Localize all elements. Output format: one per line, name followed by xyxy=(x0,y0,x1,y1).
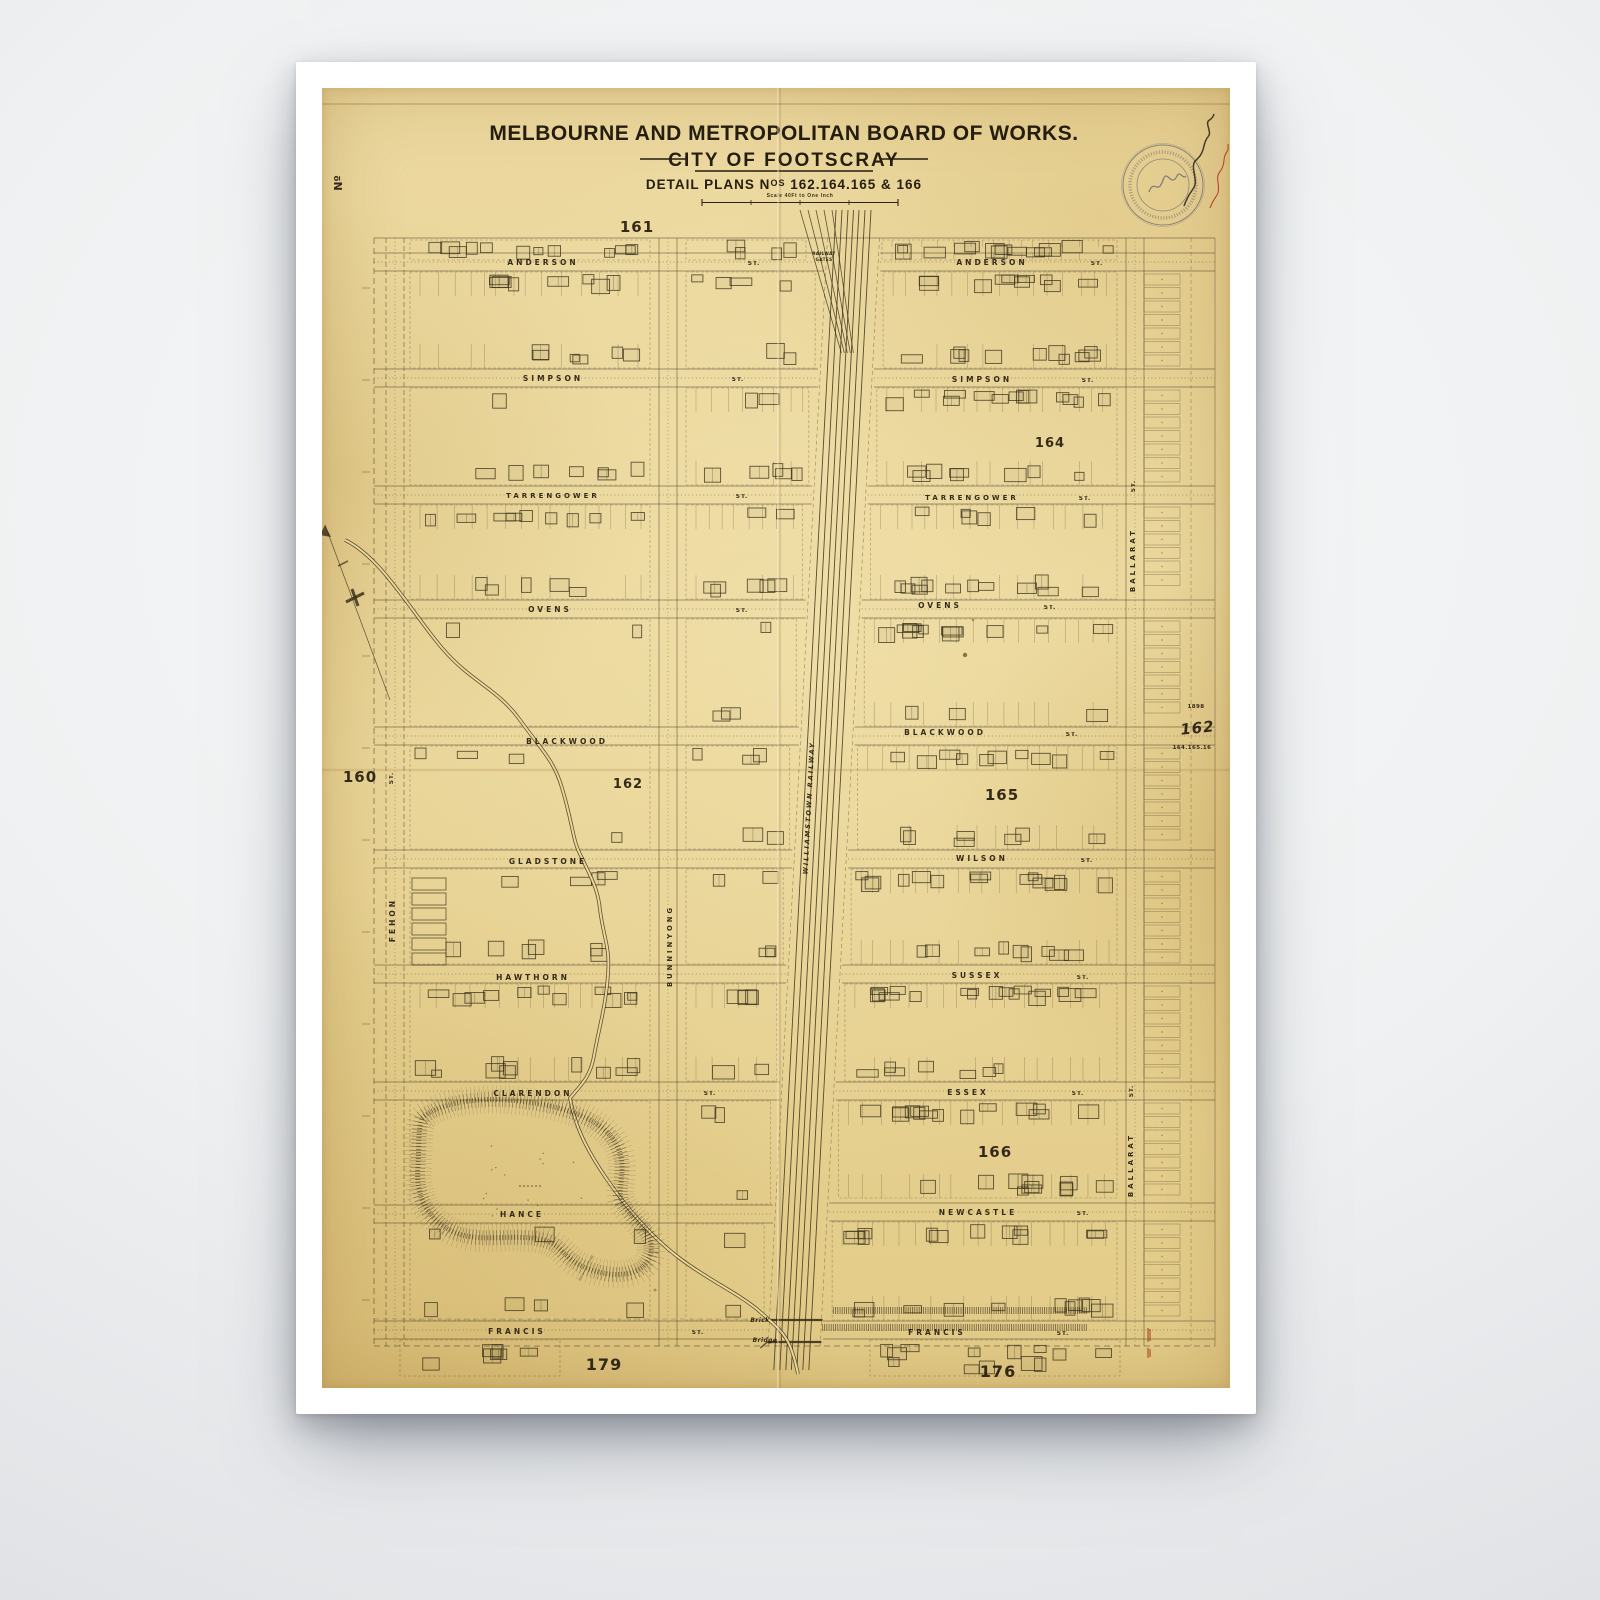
swamp-center-mark xyxy=(531,1185,533,1187)
francis-label: FRANCIS xyxy=(488,1327,546,1336)
building-footprint xyxy=(1013,945,1028,957)
building-footprint xyxy=(995,275,1015,284)
swamp-center-mark xyxy=(523,1185,525,1187)
swamp-layer xyxy=(418,1099,652,1274)
lot-dot xyxy=(1161,916,1162,917)
building-footprint xyxy=(933,1110,944,1122)
building-footprint xyxy=(766,946,776,957)
building-footprint xyxy=(509,278,519,291)
city-blocks-layer xyxy=(400,240,1180,1376)
lot-dot xyxy=(1161,333,1162,334)
block-boundary xyxy=(410,1224,650,1320)
anderson-label: ANDERSON xyxy=(956,258,1027,267)
hawthorn-label: HAWTHORN xyxy=(496,973,570,982)
building-footprint xyxy=(921,1180,936,1193)
building-footprint xyxy=(1103,246,1113,253)
swamp-dot xyxy=(486,1193,487,1194)
lot-dot xyxy=(1161,1108,1162,1109)
lot-dot xyxy=(1161,766,1162,767)
building-footprint xyxy=(711,584,721,597)
building-footprint xyxy=(453,994,471,1006)
building-footprint xyxy=(502,876,518,887)
building-footprint xyxy=(747,579,763,592)
st--label: ST. xyxy=(736,608,748,614)
gladstone-label: GLADSTONE xyxy=(509,857,587,866)
building-footprint xyxy=(482,1345,501,1357)
approval-stamp-outer-ring xyxy=(1122,144,1205,227)
lot-dot xyxy=(1161,889,1162,890)
building-footprint xyxy=(546,513,557,524)
swamp-dot xyxy=(542,1163,543,1164)
lot-dot xyxy=(1161,306,1162,307)
building-footprint xyxy=(961,509,970,517)
building-footprint xyxy=(500,1066,516,1079)
building-footprint xyxy=(768,579,787,592)
building-footprint xyxy=(978,513,990,526)
lot-dot xyxy=(1161,1004,1162,1005)
lot-dot xyxy=(1161,360,1162,361)
swamp-dot xyxy=(573,1162,574,1163)
lot-dot xyxy=(1161,476,1162,477)
building-footprint xyxy=(509,465,523,480)
board-title: MELBOURNE AND METROPOLITAN BOARD OF WORK… xyxy=(489,122,1078,145)
st--label: ST. xyxy=(1057,1331,1069,1337)
building-footprint xyxy=(476,468,495,478)
building-footprint xyxy=(861,1105,881,1117)
164-label: 164 xyxy=(1035,436,1065,451)
sussex-label: SUSSEX xyxy=(952,971,1003,980)
swamp-dot xyxy=(483,1198,484,1199)
lot-dot xyxy=(1161,1162,1162,1163)
building-footprint xyxy=(1084,514,1096,527)
building-footprint xyxy=(1064,950,1083,961)
building-footprint xyxy=(627,1303,644,1318)
paper-stain-spot xyxy=(963,653,967,657)
building-footprint xyxy=(446,623,459,638)
swamp-center-mark xyxy=(527,1185,529,1187)
swamp-dot xyxy=(581,1197,582,1198)
anderson-label: ANDERSON xyxy=(507,258,578,267)
ballarat-label: BALLARAT xyxy=(1127,1133,1135,1197)
building-footprint xyxy=(484,991,499,1001)
st--label: ST. xyxy=(748,261,760,267)
building-footprint xyxy=(965,242,980,252)
building-footprint xyxy=(429,242,442,252)
building-footprint xyxy=(748,508,766,517)
tarrengower-label: TARRENGOWER xyxy=(925,494,1019,502)
building-footprint xyxy=(550,579,569,592)
red-margin-mark xyxy=(1148,1348,1150,1358)
building-footprint xyxy=(1020,874,1042,884)
building-footprint xyxy=(715,1108,724,1123)
brick-label: Brick xyxy=(750,1317,770,1324)
lot-dot xyxy=(1161,639,1162,640)
building-footprint xyxy=(423,1358,439,1370)
framed-map-poster: MELBOURNE AND METROPOLITAN BOARD OF WORK… xyxy=(296,62,1256,1414)
ovens-label: OVENS xyxy=(528,605,572,614)
lot-dot xyxy=(1161,1283,1162,1284)
lot-dot xyxy=(1161,279,1162,280)
building-footprint xyxy=(634,1230,645,1244)
building-footprint xyxy=(968,580,979,592)
building-footprint xyxy=(1028,466,1040,478)
lot-dot xyxy=(1161,435,1162,436)
building-footprint xyxy=(745,393,757,408)
building-footprint xyxy=(886,398,903,411)
lot-dot xyxy=(1161,539,1162,540)
railway-reserve-boundary xyxy=(820,238,879,1346)
paper-stain-spot xyxy=(654,1289,657,1292)
lot-dot xyxy=(1161,1296,1162,1297)
wall-background: MELBOURNE AND METROPOLITAN BOARD OF WORK… xyxy=(0,0,1600,1600)
simpson-label: SIMPSON xyxy=(523,374,583,383)
st--label: ST. xyxy=(1079,496,1091,502)
building-footprint xyxy=(633,625,642,638)
building-footprint xyxy=(949,708,965,719)
building-footprint xyxy=(1099,394,1111,406)
building-footprint xyxy=(1098,878,1112,893)
building-footprint xyxy=(917,946,927,957)
lot-dot xyxy=(1161,780,1162,781)
st--label: ST. xyxy=(704,1091,716,1097)
building-footprint xyxy=(592,279,610,293)
fehon-frontage-lot xyxy=(412,953,446,965)
street-hatch-band xyxy=(832,1307,1087,1314)
building-footprint xyxy=(763,872,778,884)
paper-stain-spot xyxy=(972,619,974,621)
building-footprint xyxy=(919,1061,934,1072)
164-165-16-label: 164.165.16 xyxy=(1173,745,1212,751)
building-footprint xyxy=(1079,350,1101,361)
lot-dot xyxy=(1161,626,1162,627)
building-footprint xyxy=(846,1231,864,1238)
lot-dot xyxy=(1161,395,1162,396)
1898-label: 1898 xyxy=(1188,704,1205,710)
st--label: ST. xyxy=(1044,605,1056,611)
building-footprint xyxy=(910,992,921,1002)
building-footprint xyxy=(570,467,584,477)
swamp-stipple xyxy=(418,1099,652,1274)
st--label: ST. xyxy=(1082,378,1094,384)
building-footprint xyxy=(1096,1181,1113,1193)
fehon-label: FEHON xyxy=(388,898,397,942)
building-footprint xyxy=(1078,1105,1098,1119)
city-title: CITY OF FOOTSCRAY xyxy=(668,150,899,171)
railway-siding xyxy=(808,210,844,353)
swamp-edge xyxy=(418,1099,652,1274)
lot-dot xyxy=(1161,525,1162,526)
building-footprint xyxy=(980,754,994,765)
building-footprint xyxy=(522,578,531,593)
building-footprint xyxy=(493,394,507,408)
lot-dot xyxy=(1161,957,1162,958)
building-footprint xyxy=(891,752,905,762)
building-footprint xyxy=(1016,750,1028,758)
building-footprint xyxy=(978,583,993,591)
lot-dot xyxy=(1161,346,1162,347)
building-footprint xyxy=(913,626,924,638)
building-footprint xyxy=(1058,987,1069,996)
stamp-signature-squiggle xyxy=(1149,174,1186,192)
swamp-dot xyxy=(492,1215,493,1216)
building-footprint xyxy=(726,1305,741,1317)
lot-dot xyxy=(1161,1018,1162,1019)
block-boundary xyxy=(686,1101,770,1204)
fehon-frontage-lot xyxy=(412,923,446,935)
n--label: Nº xyxy=(332,175,345,190)
lot-dot xyxy=(1161,408,1162,409)
creek-water xyxy=(345,540,798,1374)
lot-dot xyxy=(1161,653,1162,654)
fehon-frontage-lot xyxy=(412,878,446,890)
st--label: ST. xyxy=(389,772,395,784)
st--label: ST. xyxy=(1091,261,1103,267)
building-footprint xyxy=(466,242,477,254)
ovens-label: OVENS xyxy=(918,601,962,610)
lot-dot xyxy=(1161,1045,1162,1046)
swamp-dot xyxy=(504,1174,505,1175)
essex-label: ESSEX xyxy=(947,1088,989,1097)
building-footprint xyxy=(725,1233,745,1247)
st--label: ST. xyxy=(1077,975,1089,981)
building-footprint xyxy=(572,1058,582,1072)
building-footprint xyxy=(533,350,549,360)
building-footprint xyxy=(784,353,796,365)
building-footprint xyxy=(1062,241,1082,253)
building-footprint xyxy=(992,395,1008,404)
building-footprint xyxy=(1016,828,1030,841)
166-label: 166 xyxy=(978,1143,1012,1161)
swamp-dot xyxy=(527,1199,528,1200)
wilson-label: WILSON xyxy=(956,854,1008,863)
lot-dot xyxy=(1161,707,1162,708)
building-footprint xyxy=(780,281,791,291)
building-footprint xyxy=(488,941,503,956)
st--label: ST. xyxy=(1131,480,1137,492)
railway-track xyxy=(791,210,853,1370)
lot-dot xyxy=(1161,807,1162,808)
swamp-dot xyxy=(537,1205,538,1206)
building-footprint xyxy=(1087,709,1108,721)
building-footprint xyxy=(1034,1345,1046,1352)
lot-dot xyxy=(1161,512,1162,513)
francis-label: FRANCIS xyxy=(908,1328,966,1337)
building-footprint xyxy=(481,243,493,253)
creek-banks xyxy=(345,540,798,1374)
lot-dot xyxy=(1161,1072,1162,1073)
building-footprint xyxy=(509,754,524,763)
162-label: 162 xyxy=(1179,717,1215,738)
st--label: ST. xyxy=(1072,1091,1084,1097)
bunninyong-label: BUNNINYONG xyxy=(666,905,674,987)
ballarat-label: BALLARAT xyxy=(1129,528,1137,592)
162-label: 162 xyxy=(613,777,643,792)
building-footprint xyxy=(901,355,922,363)
building-footprint xyxy=(1037,626,1048,633)
lot-dot xyxy=(1161,793,1162,794)
lot-dot xyxy=(1161,820,1162,821)
st--label: ST. xyxy=(1066,732,1078,738)
lot-dot xyxy=(1161,1135,1162,1136)
building-footprint xyxy=(623,349,639,361)
building-footprint xyxy=(1087,1230,1107,1238)
newcastle-label: NEWCASTLE xyxy=(939,1208,1017,1217)
building-footprint xyxy=(912,872,930,883)
gates-label: GATES xyxy=(815,257,832,262)
north-arrow-head xyxy=(322,525,331,537)
building-footprint xyxy=(767,343,785,358)
bridge-label: Bridge xyxy=(753,1337,778,1344)
building-footprint xyxy=(857,1070,878,1077)
lot-dot xyxy=(1161,876,1162,877)
swamp-dot xyxy=(542,1153,543,1154)
lot-dot xyxy=(1161,1242,1162,1243)
swamp-dot xyxy=(496,1208,497,1209)
161-label: 161 xyxy=(620,218,654,236)
railway-label: RAILWAY xyxy=(812,251,836,256)
swamp-stipple-outer xyxy=(418,1099,652,1274)
st--label: ST. xyxy=(736,494,748,500)
building-footprint xyxy=(590,514,601,523)
swamp-dot xyxy=(539,1158,540,1159)
red-annotation-script xyxy=(1210,144,1228,208)
lot-dot xyxy=(1161,1121,1162,1122)
lot-dot xyxy=(1161,462,1162,463)
building-footprint xyxy=(569,587,586,596)
building-footprint xyxy=(1096,1349,1112,1358)
street-grid-layer xyxy=(362,238,1215,1346)
lot-dot xyxy=(1161,1269,1162,1270)
lot-dot xyxy=(1161,552,1162,553)
st--label: ST. xyxy=(1081,858,1093,864)
lot-dot xyxy=(1161,422,1162,423)
lot-dot xyxy=(1161,1310,1162,1311)
building-footprint xyxy=(730,278,752,285)
building-footprint xyxy=(924,247,945,258)
simpson-label: SIMPSON xyxy=(952,375,1012,384)
blackwood-label: BLACKWOOD xyxy=(904,728,986,737)
railway-track xyxy=(774,210,836,1370)
176-label: 176 xyxy=(980,1362,1016,1381)
building-footprint xyxy=(713,1066,735,1079)
building-footprint xyxy=(441,242,460,254)
tarrengower-label: TARRENGOWER xyxy=(506,492,600,500)
building-footprint xyxy=(1035,1358,1046,1371)
scale-note: Scale 40Ft to One Inch xyxy=(767,193,834,199)
building-footprint xyxy=(692,275,703,282)
building-footprint xyxy=(960,1070,976,1078)
title-block: MELBOURNE AND METROPOLITAN BOARD OF WORK… xyxy=(489,122,1078,206)
railway-track xyxy=(809,210,871,1370)
building-footprint xyxy=(931,875,944,887)
footscray-detail-plan-map: MELBOURNE AND METROPOLITAN BOARD OF WORK… xyxy=(322,88,1230,1388)
st--label: ST. xyxy=(1077,1211,1089,1217)
stamps-and-signatures xyxy=(1122,114,1229,227)
building-footprint xyxy=(415,748,426,759)
building-footprint xyxy=(1026,248,1044,257)
lot-dot xyxy=(1161,834,1162,835)
building-footprint xyxy=(915,507,929,516)
building-footprint xyxy=(1061,1176,1078,1189)
lot-dot xyxy=(1161,1031,1162,1032)
lot-dot xyxy=(1161,292,1162,293)
st--label: ST. xyxy=(1129,1085,1135,1097)
building-footprint xyxy=(628,993,637,1000)
building-footprint xyxy=(987,626,1003,638)
building-footprint xyxy=(631,462,644,476)
building-footprint xyxy=(1040,275,1052,285)
lot-dot xyxy=(1161,1189,1162,1190)
lot-dot xyxy=(1161,1058,1162,1059)
lot-dot xyxy=(1161,449,1162,450)
building-footprint xyxy=(1053,755,1067,768)
swamp-dot xyxy=(491,1169,492,1170)
building-footprint xyxy=(570,877,591,885)
building-footprint xyxy=(1032,753,1051,764)
lot-dot xyxy=(1161,579,1162,580)
lot-dot xyxy=(1161,991,1162,992)
st--label: ST. xyxy=(692,1330,704,1336)
fehon-frontage-lot xyxy=(412,908,446,920)
lot-dot xyxy=(1161,680,1162,681)
building-footprint xyxy=(1082,587,1098,596)
approval-stamp-outer-ring xyxy=(1123,145,1203,225)
building-footprint xyxy=(1033,1104,1045,1114)
lot-dot xyxy=(1161,1175,1162,1176)
approval-stamp-inner-ring xyxy=(1137,159,1189,211)
lot-dot xyxy=(1161,1148,1162,1149)
building-footprint xyxy=(856,872,868,880)
swamp-center-mark xyxy=(519,1185,521,1187)
lot-dot xyxy=(1161,666,1162,667)
building-footprint xyxy=(784,243,796,258)
building-footprint xyxy=(1016,508,1034,520)
map-paper: MELBOURNE AND METROPOLITAN BOARD OF WORK… xyxy=(322,88,1230,1388)
building-footprint xyxy=(893,1107,908,1117)
lot-dot xyxy=(1161,943,1162,944)
building-footprint xyxy=(919,277,938,286)
scale-bar xyxy=(702,199,898,206)
lot-dot xyxy=(1161,930,1162,931)
fehon-frontage-lot xyxy=(412,893,446,905)
plans-subtitle: DETAIL PLANS NOS 162.164.165 & 166 xyxy=(646,177,922,192)
swamp-dot xyxy=(491,1145,492,1146)
swamp-center-mark xyxy=(539,1185,541,1187)
approval-stamp-ring-text xyxy=(1130,152,1196,218)
building-footprint xyxy=(755,1064,769,1074)
lot-dot xyxy=(1161,903,1162,904)
building-footprint xyxy=(553,994,566,1005)
ink-signature xyxy=(1184,114,1214,206)
building-footprint xyxy=(946,584,961,593)
building-footprint xyxy=(591,949,608,962)
building-footprint xyxy=(1074,397,1083,407)
building-footprint xyxy=(1005,468,1027,481)
hance-label: HANCE xyxy=(500,1210,544,1219)
fehon-frontage-lot xyxy=(412,938,446,950)
blackwood-label: BLACKWOOD xyxy=(526,737,608,746)
building-footprint xyxy=(627,1059,639,1073)
building-footprint xyxy=(612,347,623,358)
building-footprint xyxy=(425,1303,438,1317)
building-footprint xyxy=(1053,1349,1066,1360)
building-footprint xyxy=(964,1365,979,1374)
lot-dot xyxy=(1161,1229,1162,1230)
building-footprint xyxy=(702,1106,716,1118)
building-footprint xyxy=(985,350,1001,363)
building-footprint xyxy=(693,748,702,760)
lot-dot xyxy=(1161,566,1162,567)
